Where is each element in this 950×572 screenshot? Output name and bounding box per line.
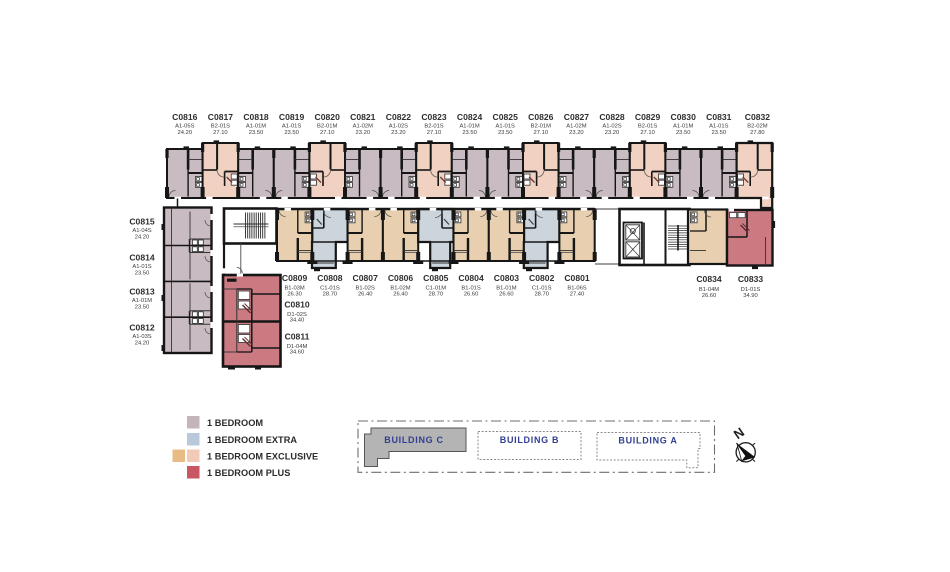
svg-text:A1-01M: A1-01M bbox=[673, 124, 693, 130]
svg-text:C0807: C0807 bbox=[353, 273, 379, 283]
svg-text:A1-01S: A1-01S bbox=[709, 124, 728, 130]
svg-text:34.40: 34.40 bbox=[290, 318, 305, 324]
svg-text:A1-04S: A1-04S bbox=[132, 228, 151, 234]
svg-text:C0821: C0821 bbox=[350, 112, 376, 122]
svg-text:B2-02M: B2-02M bbox=[747, 124, 767, 130]
svg-text:C0804: C0804 bbox=[458, 273, 484, 283]
svg-text:C0830: C0830 bbox=[671, 112, 697, 122]
svg-text:A1-01M: A1-01M bbox=[132, 298, 152, 304]
svg-text:B2-01S: B2-01S bbox=[211, 124, 230, 130]
svg-text:C0818: C0818 bbox=[243, 112, 269, 122]
svg-text:24.20: 24.20 bbox=[135, 341, 150, 347]
svg-text:26.30: 26.30 bbox=[287, 291, 302, 297]
svg-text:BUILDING C: BUILDING C bbox=[384, 435, 444, 445]
svg-text:B2-01S: B2-01S bbox=[638, 124, 657, 130]
svg-text:C0817: C0817 bbox=[208, 112, 234, 122]
svg-text:C0803: C0803 bbox=[494, 273, 520, 283]
svg-text:C0813: C0813 bbox=[129, 287, 155, 297]
svg-text:C0823: C0823 bbox=[421, 112, 447, 122]
svg-text:C0811: C0811 bbox=[285, 332, 310, 342]
svg-text:A1-01M: A1-01M bbox=[246, 124, 266, 130]
svg-text:C0810: C0810 bbox=[284, 300, 310, 310]
svg-text:C0820: C0820 bbox=[315, 112, 341, 122]
svg-text:27.10: 27.10 bbox=[427, 130, 442, 136]
svg-text:34.90: 34.90 bbox=[743, 293, 758, 299]
svg-text:24.20: 24.20 bbox=[178, 130, 193, 136]
svg-text:1 BEDROOM: 1 BEDROOM bbox=[207, 418, 263, 428]
svg-text:C0831: C0831 bbox=[706, 112, 732, 122]
svg-text:A1-02S: A1-02S bbox=[389, 124, 408, 130]
svg-text:C0822: C0822 bbox=[386, 112, 412, 122]
svg-text:26.60: 26.60 bbox=[702, 293, 717, 299]
svg-text:24.20: 24.20 bbox=[135, 235, 150, 241]
svg-text:23.50: 23.50 bbox=[462, 130, 477, 136]
svg-text:C0819: C0819 bbox=[279, 112, 305, 122]
svg-text:C0815: C0815 bbox=[129, 217, 155, 227]
svg-text:A1-01M: A1-01M bbox=[459, 124, 479, 130]
svg-text:23.20: 23.20 bbox=[569, 130, 584, 136]
svg-text:27.10: 27.10 bbox=[640, 130, 655, 136]
svg-text:23.50: 23.50 bbox=[284, 130, 299, 136]
svg-text:B2-01M: B2-01M bbox=[531, 124, 551, 130]
svg-text:A1-01S: A1-01S bbox=[132, 264, 151, 270]
svg-text:BUILDING B: BUILDING B bbox=[500, 435, 560, 445]
svg-text:1 BEDROOM EXTRA: 1 BEDROOM EXTRA bbox=[207, 435, 297, 445]
svg-text:27.10: 27.10 bbox=[320, 130, 335, 136]
svg-text:BUILDING A: BUILDING A bbox=[618, 436, 677, 446]
svg-text:C0828: C0828 bbox=[599, 112, 625, 122]
svg-text:23.50: 23.50 bbox=[135, 271, 150, 277]
svg-text:23.20: 23.20 bbox=[356, 130, 371, 136]
svg-text:23.50: 23.50 bbox=[135, 305, 150, 311]
svg-text:28.70: 28.70 bbox=[534, 291, 549, 297]
svg-text:34.60: 34.60 bbox=[290, 350, 305, 356]
svg-text:C0814: C0814 bbox=[129, 253, 155, 263]
svg-text:1 BEDROOM EXCLUSIVE: 1 BEDROOM EXCLUSIVE bbox=[207, 451, 318, 461]
svg-text:1 BEDROOM PLUS: 1 BEDROOM PLUS bbox=[207, 468, 290, 478]
svg-text:26.40: 26.40 bbox=[358, 291, 373, 297]
svg-text:C0809: C0809 bbox=[282, 273, 308, 283]
svg-text:27.10: 27.10 bbox=[534, 130, 549, 136]
svg-text:A1-02S: A1-02S bbox=[602, 124, 621, 130]
svg-text:B2-01S: B2-01S bbox=[424, 124, 443, 130]
svg-text:A1-05S: A1-05S bbox=[175, 124, 194, 130]
svg-text:C0802: C0802 bbox=[529, 273, 555, 283]
svg-text:C0829: C0829 bbox=[635, 112, 661, 122]
svg-text:23.50: 23.50 bbox=[712, 130, 727, 136]
svg-text:23.50: 23.50 bbox=[498, 130, 513, 136]
svg-text:27.40: 27.40 bbox=[570, 291, 585, 297]
svg-text:A1-02M: A1-02M bbox=[353, 124, 373, 130]
svg-text:26.60: 26.60 bbox=[464, 291, 479, 297]
svg-text:A1-01S: A1-01S bbox=[282, 124, 301, 130]
svg-text:A1-03S: A1-03S bbox=[132, 334, 151, 340]
svg-text:A1-01S: A1-01S bbox=[496, 124, 515, 130]
svg-text:A1-02M: A1-02M bbox=[566, 124, 586, 130]
svg-text:C0833: C0833 bbox=[738, 274, 764, 284]
svg-text:C0816: C0816 bbox=[172, 112, 198, 122]
svg-text:B2-01M: B2-01M bbox=[317, 124, 337, 130]
svg-text:C0824: C0824 bbox=[457, 112, 483, 122]
svg-text:23.50: 23.50 bbox=[676, 130, 691, 136]
svg-text:C0827: C0827 bbox=[564, 112, 590, 122]
svg-text:C0805: C0805 bbox=[423, 273, 449, 283]
svg-text:C0834: C0834 bbox=[696, 274, 722, 284]
svg-text:23.20: 23.20 bbox=[391, 130, 406, 136]
svg-text:C0808: C0808 bbox=[317, 273, 343, 283]
svg-text:C0826: C0826 bbox=[528, 112, 554, 122]
svg-text:27.10: 27.10 bbox=[213, 130, 228, 136]
svg-text:C0825: C0825 bbox=[493, 112, 519, 122]
svg-text:C0832: C0832 bbox=[745, 112, 771, 122]
svg-text:28.70: 28.70 bbox=[323, 291, 338, 297]
svg-text:27.80: 27.80 bbox=[750, 130, 765, 136]
svg-text:26.40: 26.40 bbox=[393, 291, 408, 297]
svg-text:28.70: 28.70 bbox=[429, 291, 444, 297]
svg-text:C0801: C0801 bbox=[564, 273, 590, 283]
svg-text:23.50: 23.50 bbox=[249, 130, 264, 136]
svg-text:C0812: C0812 bbox=[129, 323, 155, 333]
svg-text:26.60: 26.60 bbox=[499, 291, 514, 297]
svg-text:C0806: C0806 bbox=[388, 273, 414, 283]
svg-text:23.20: 23.20 bbox=[605, 130, 620, 136]
